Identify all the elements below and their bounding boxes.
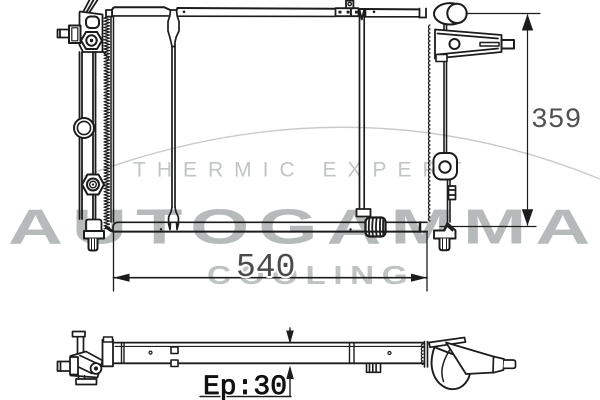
svg-text:540: 540	[236, 249, 295, 286]
svg-text:359: 359	[531, 105, 581, 136]
svg-text:THERMIC EXPERT: THERMIC EXPERT	[133, 159, 472, 182]
svg-text:Ep:30: Ep:30	[203, 372, 287, 400]
